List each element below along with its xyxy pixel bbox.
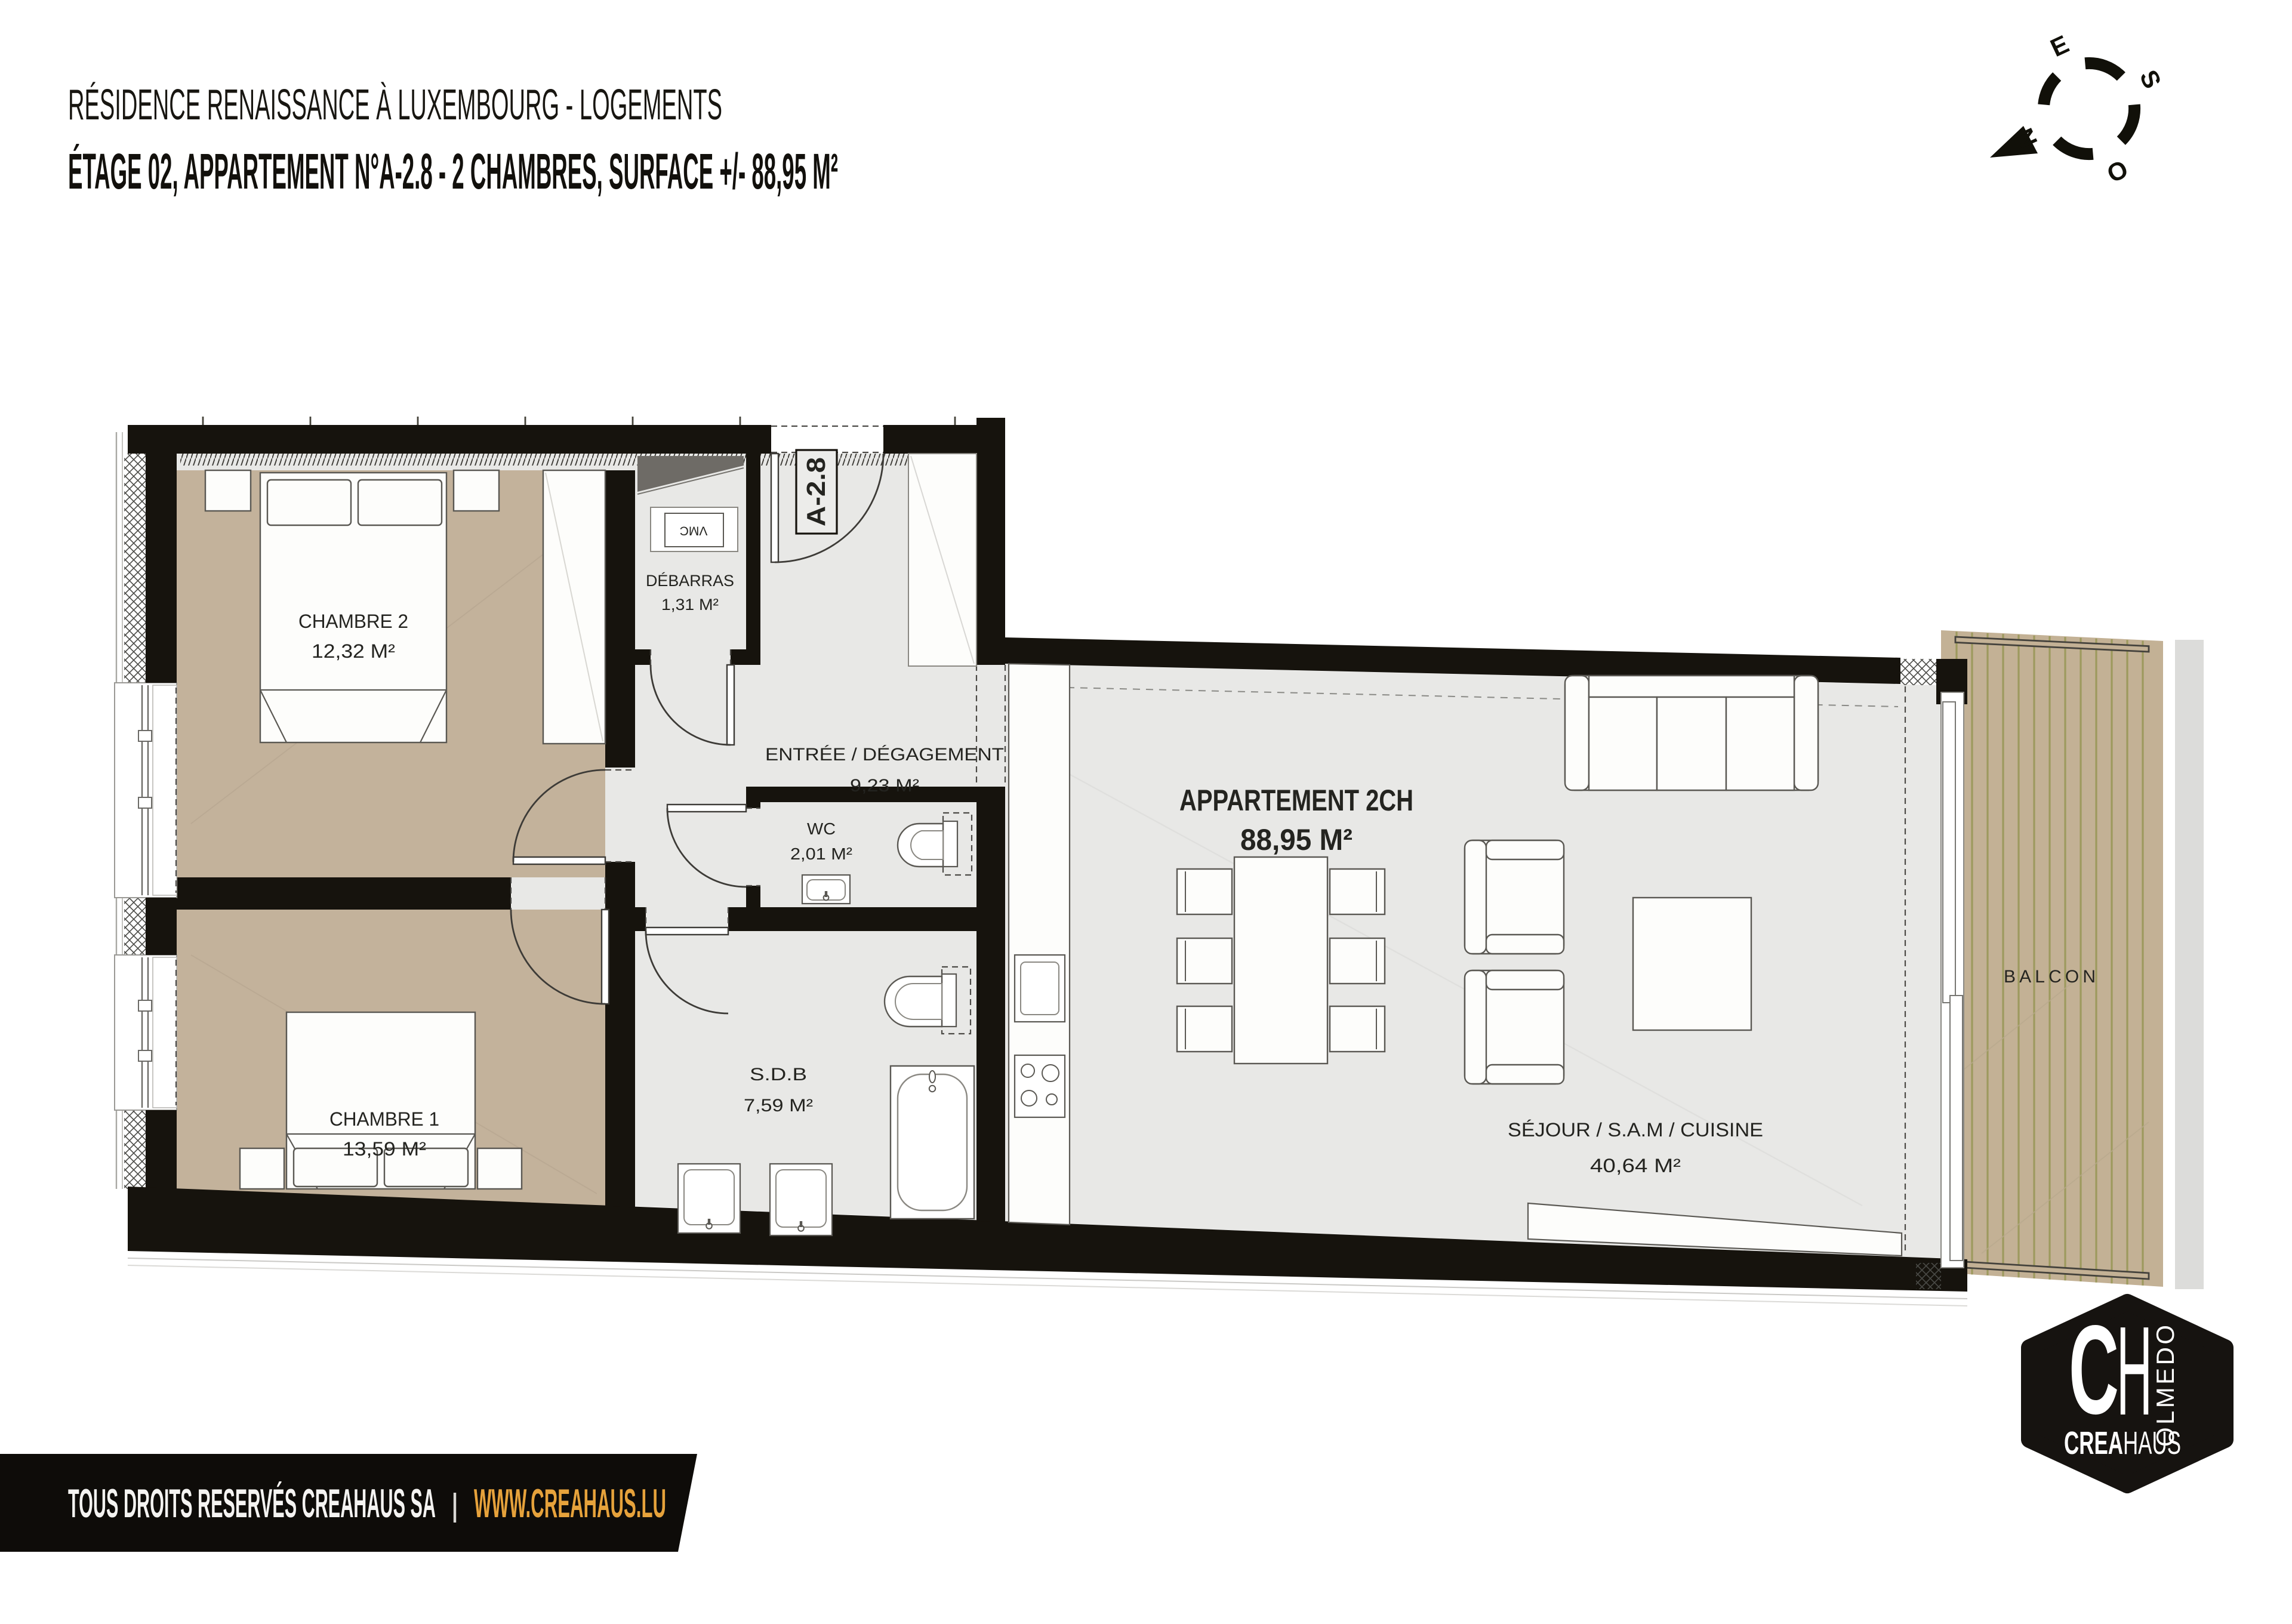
unit-tag-label: A-2.8 — [802, 457, 831, 526]
washbasin-inner — [684, 1170, 734, 1225]
wall-entry-living — [976, 787, 1005, 1222]
faucet-icon — [825, 891, 827, 897]
balcony-sliding-door — [1941, 692, 1964, 1268]
creahaus-logo: C H OLMEDO CREAHAUS — [2029, 1299, 2225, 1485]
door-leaf — [513, 857, 605, 864]
logo-brand-bold: CREA — [2064, 1425, 2123, 1461]
footer-website[interactable]: WWW.CREAHAUS.LU — [474, 1481, 666, 1526]
entry-living-opening — [976, 665, 1005, 787]
armchair-armrest — [1486, 970, 1564, 990]
neighbor-strip — [2175, 640, 2204, 1289]
compass-ring-icon — [2044, 63, 2134, 154]
dining-table — [1234, 857, 1327, 1064]
sofa-armrest — [1565, 676, 1589, 790]
logo-brand: CREAHAUS — [2064, 1425, 2181, 1461]
wall-debarras-right — [746, 425, 760, 665]
window-chambre-1 — [115, 945, 177, 1120]
footer-rights: TOUS DROITS RESERVÉS CREAHAUS SA — [68, 1481, 436, 1526]
logo-initial-h: H — [2117, 1300, 2152, 1441]
door-leaf — [602, 910, 609, 1004]
armchair-armrest — [1486, 840, 1564, 859]
nightstand — [478, 1148, 522, 1189]
room-area: 12,32 M² — [312, 640, 395, 662]
room-area: 40,64 M² — [1590, 1155, 1681, 1176]
insulation-hatch — [124, 898, 146, 955]
room-name: S.D.B — [750, 1065, 807, 1084]
washbasin-inner — [776, 1170, 826, 1227]
room-area: 2,01 M² — [790, 845, 852, 863]
chambre-2-furniture — [205, 470, 605, 744]
compass-rose: N E S O — [1990, 30, 2167, 189]
nightstand — [454, 470, 499, 511]
wall-chambers-right — [605, 862, 635, 877]
wall-chambers-right — [605, 910, 635, 1208]
wall-wc-left — [746, 886, 760, 907]
pillow — [267, 480, 351, 525]
armchair-back — [1465, 840, 1486, 954]
dining-set — [1177, 857, 1385, 1064]
sofa-cushion — [1726, 697, 1794, 790]
room-name: DÉBARRAS — [646, 572, 734, 590]
door-leaf — [667, 805, 746, 812]
apartment-area: 88,95 M² — [1240, 823, 1353, 856]
logo-brand-light: HAUS — [2123, 1425, 2181, 1461]
armchair-back — [1465, 970, 1486, 1084]
dining-chairs-left — [1177, 869, 1232, 1052]
room-name: ENTRÉE / DÉGAGEMENT — [765, 745, 1004, 765]
wall-chambers-right — [605, 470, 635, 768]
wall-between-chambers — [605, 877, 635, 910]
wall-wc-left — [746, 802, 760, 808]
sofa-cushion — [1589, 697, 1657, 790]
armchair-armrest — [1486, 1065, 1564, 1084]
room-area: 13,59 M² — [343, 1138, 426, 1160]
sofa-back — [1589, 676, 1794, 697]
sofa-armrest — [1794, 676, 1818, 790]
room-name: SÉJOUR / S.A.M / CUISINE — [1508, 1119, 1763, 1141]
floor-plan-page: RÉSIDENCE RENAISSANCE À LUXEMBOURG - LOG… — [0, 0, 2292, 1624]
armchair-armrest — [1486, 935, 1564, 954]
toilet-bowl-inner — [895, 984, 942, 1019]
footer-website-link[interactable]: WWW.CREAHAUS.LU — [474, 1481, 666, 1526]
faucet-icon — [708, 1219, 710, 1225]
room-name: WC — [807, 819, 836, 838]
compass-e: E — [2046, 30, 2073, 62]
wall-sdb-top — [728, 907, 976, 931]
cooktop — [1015, 1055, 1065, 1117]
room-name: CHAMBRE 1 — [329, 1108, 439, 1130]
coffee-table — [1633, 898, 1751, 1030]
wall-entry-living — [976, 418, 1005, 665]
insulation-hatch — [1916, 1263, 1941, 1289]
room-name: CHAMBRE 2 — [298, 611, 408, 632]
insulation-hatch — [1900, 659, 1936, 685]
wall-left-seg — [146, 1110, 177, 1189]
bathtub-faucet-icon — [929, 1071, 935, 1083]
kitchen — [1009, 664, 1070, 1225]
wall-sdb-top — [635, 907, 646, 931]
title-line-2: ÉTAGE 02, APPARTEMENT N°A-2.8 - 2 CHAMBR… — [68, 143, 838, 199]
title-block: RÉSIDENCE RENAISSANCE À LUXEMBOURG - LOG… — [68, 81, 838, 199]
dimension-ticks — [203, 417, 955, 425]
footer-separator: | — [451, 1487, 459, 1523]
apartment-name: APPARTEMENT 2CH — [1179, 784, 1413, 817]
wall-debarras-bottom — [731, 649, 760, 665]
toilet-tank — [943, 821, 957, 867]
faucet-icon — [800, 1221, 802, 1227]
wall-top-gasket — [180, 454, 1005, 466]
wall-left-seg — [146, 454, 177, 683]
toilet-tank — [942, 974, 956, 1027]
title-line-1: RÉSIDENCE RENAISSANCE À LUXEMBOURG - LOG… — [68, 81, 722, 129]
footer-bar: TOUS DROITS RESERVÉS CREAHAUS SA | WWW.C… — [0, 1454, 697, 1552]
room-area: 7,59 M² — [744, 1096, 813, 1115]
kitchen-sink-inner — [1021, 962, 1059, 1015]
compass-o: O — [2103, 155, 2132, 188]
balcony-deck — [1941, 630, 2204, 1289]
room-area: 1,31 M² — [661, 596, 719, 614]
logo-initial-c: C — [2069, 1299, 2119, 1440]
dining-chairs-right — [1330, 869, 1385, 1052]
bathtub-drain-icon — [929, 1086, 935, 1092]
sofa-cushion — [1657, 697, 1726, 790]
insulation-hatch — [124, 1110, 146, 1189]
compass-s: S — [2134, 66, 2167, 93]
window-chambre-2 — [115, 673, 177, 907]
door-leaf — [727, 665, 734, 745]
bathtub-inner — [898, 1074, 967, 1210]
toilet-bowl-inner — [911, 831, 943, 859]
pillow — [358, 480, 442, 525]
room-area: 9,23 M² — [850, 776, 919, 796]
wall-between-chambers — [156, 877, 511, 910]
door-leaf — [646, 927, 728, 935]
door-leaf — [771, 454, 778, 562]
unit-tag-box: A-2.8 — [796, 450, 837, 534]
nightstand — [205, 470, 251, 511]
insulation-hatch — [124, 454, 146, 683]
floor-plan: RÉSIDENCE RENAISSANCE À LUXEMBOURG - LOG… — [0, 0, 2292, 1624]
vmc-label: VMC — [680, 523, 708, 537]
wall-debarras-bottom — [605, 649, 651, 665]
nightstand — [240, 1148, 284, 1189]
kitchen-counter — [1009, 664, 1070, 1225]
